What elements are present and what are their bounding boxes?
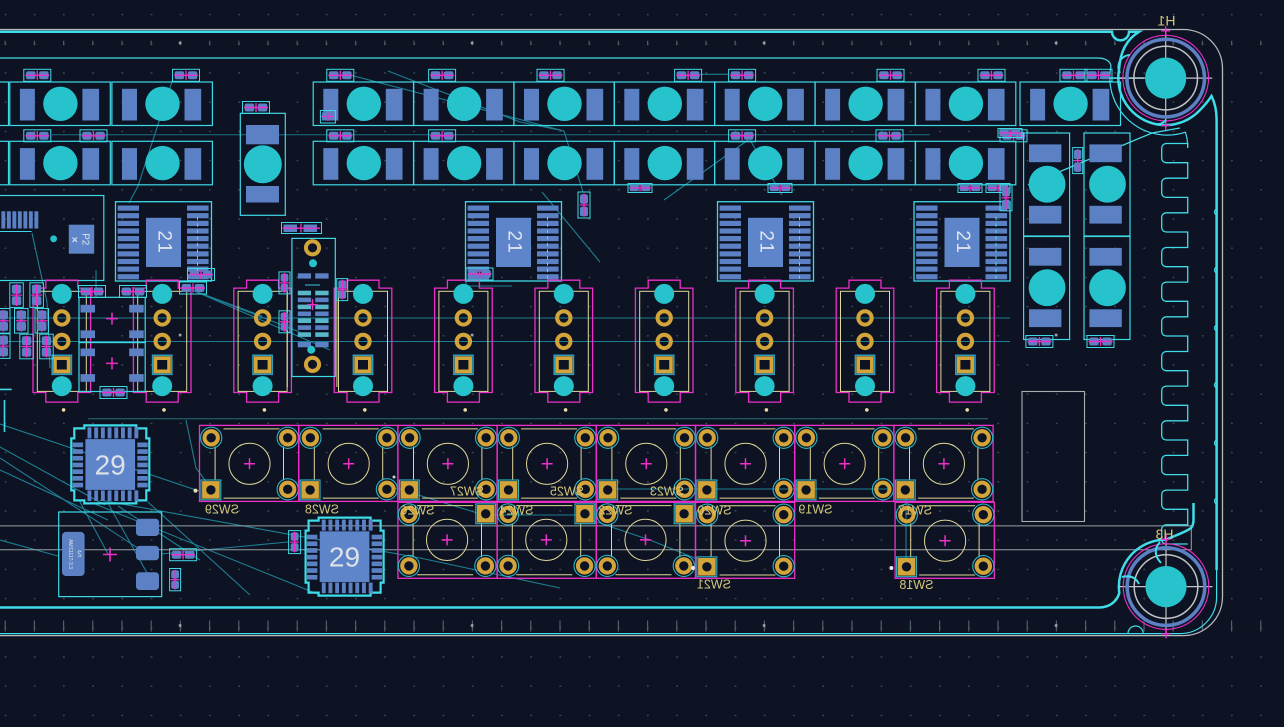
svg-text:2: 2 <box>77 550 82 559</box>
svg-text:SW25: SW25 <box>550 485 584 499</box>
svg-text:SW20: SW20 <box>697 504 731 518</box>
svg-text:SW18: SW18 <box>899 578 933 592</box>
svg-text:SW27: SW27 <box>450 485 484 499</box>
svg-text:AMS1117-3.3: AMS1117-3.3 <box>67 539 73 569</box>
svg-text:SW29: SW29 <box>205 503 239 517</box>
svg-text:SW28: SW28 <box>305 503 339 517</box>
svg-text:P2: P2 <box>80 233 91 246</box>
svg-text:H1: H1 <box>1157 13 1175 29</box>
svg-text:H3: H3 <box>1155 526 1173 542</box>
svg-text:SW21: SW21 <box>697 578 731 592</box>
svg-text:SW26: SW26 <box>400 504 434 518</box>
svg-text:SW17: SW17 <box>898 504 932 518</box>
svg-text:SW23: SW23 <box>650 485 684 499</box>
svg-text:SW24: SW24 <box>499 504 533 518</box>
svg-text:SW22: SW22 <box>598 504 632 518</box>
svg-text:SW19: SW19 <box>798 503 832 517</box>
